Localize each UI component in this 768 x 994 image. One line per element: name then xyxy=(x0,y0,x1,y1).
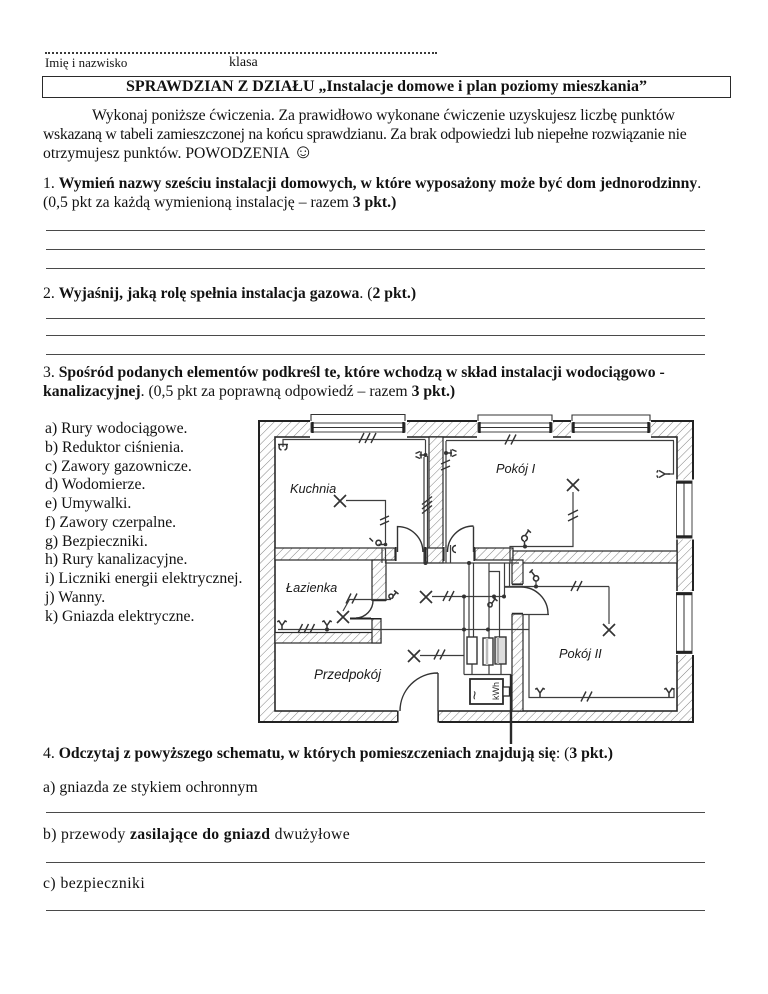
svg-text:kWh: kWh xyxy=(491,682,501,700)
svg-text:Przedpokój: Przedpokój xyxy=(314,667,382,682)
svg-text:Łazienka: Łazienka xyxy=(286,580,337,595)
svg-text:Kuchnia: Kuchnia xyxy=(290,481,336,496)
svg-text:~: ~ xyxy=(467,691,484,700)
svg-text:Pokój I: Pokój I xyxy=(496,461,536,476)
svg-text:Pokój II: Pokój II xyxy=(559,646,602,661)
